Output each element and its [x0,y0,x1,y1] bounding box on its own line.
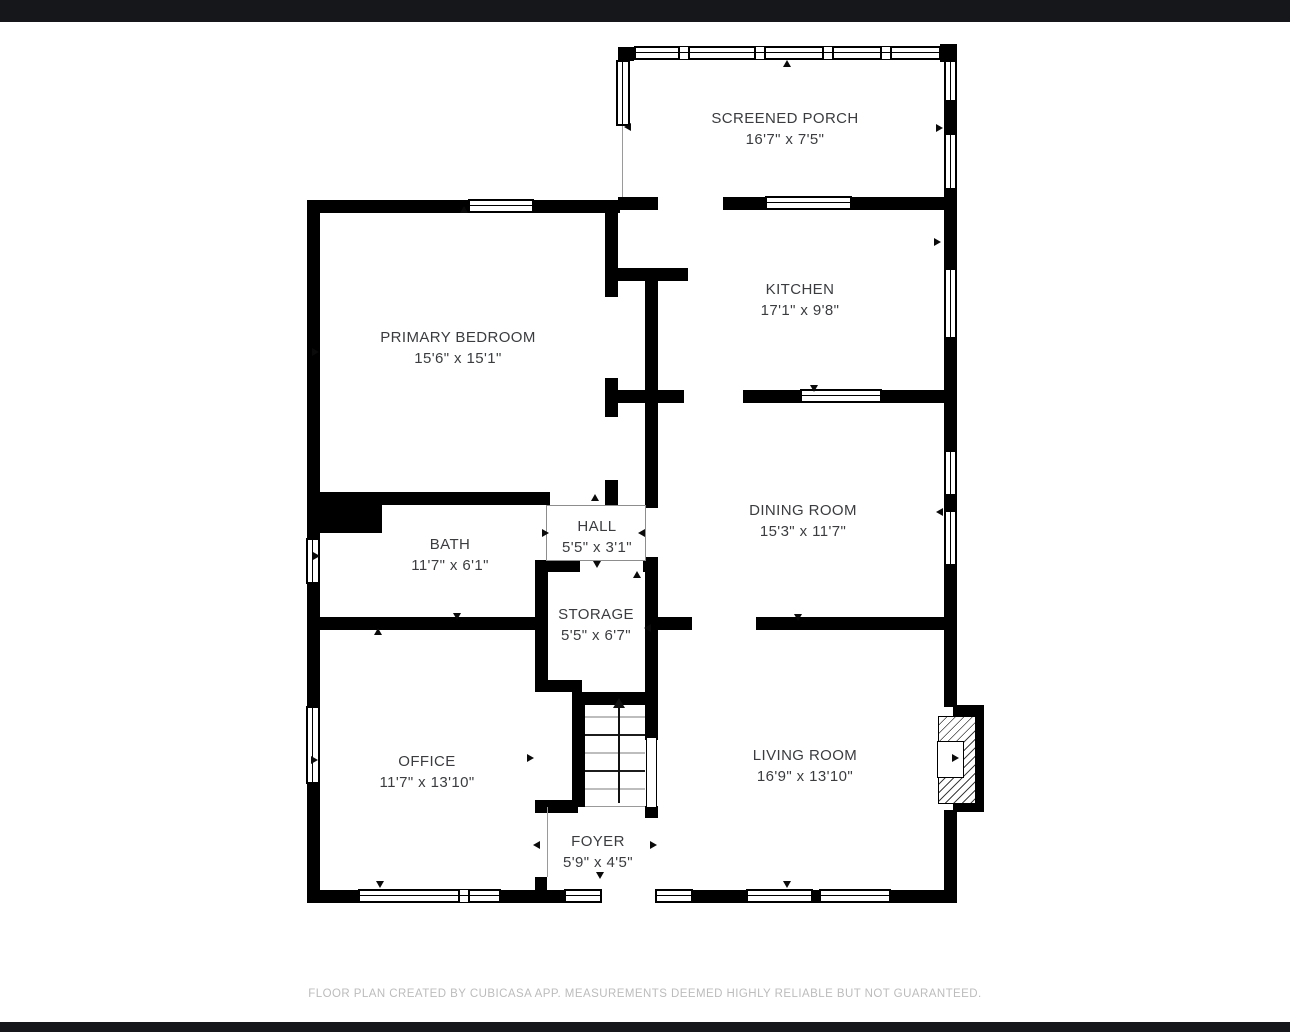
room-label-foyer: FOYER 5'9" x 4'5" [563,831,633,873]
room-name: STORAGE [558,604,634,625]
room-dimensions: 5'9" x 4'5" [563,852,633,873]
window [655,889,693,903]
porch-screen-band [634,46,941,60]
stair-tread [585,716,645,718]
wall-segment [320,505,382,533]
opening-marker [794,614,802,621]
wall-segment [880,390,957,403]
window-mullion [822,47,834,59]
stair-tread [585,734,645,736]
doorway-line [585,806,645,807]
wall-segment [850,197,957,210]
opening-marker [936,124,943,132]
opening-marker [313,552,320,560]
opening-marker [460,206,468,213]
wall-segment [756,617,944,630]
stairs-up-arrow [613,698,625,708]
opening-marker [650,841,657,849]
porch-opening-line [622,126,623,197]
opening-marker [311,756,318,764]
room-name: KITCHEN [761,279,840,300]
wall-segment [645,557,658,740]
room-dimensions: 16'7" x 7'5" [711,129,858,150]
opening-marker [533,841,540,849]
wall-segment [548,560,580,572]
window-mullion [754,47,766,59]
window [564,889,602,903]
window [944,450,957,496]
window [944,60,957,102]
room-dimensions: 11'7" x 6'1" [411,555,489,576]
room-dimensions: 17'1" x 9'8" [761,300,840,321]
opening-marker [783,60,791,67]
window-mullion [880,47,892,59]
opening-marker [527,754,534,762]
floor-plan-page: SCREENED PORCH 16'7" x 7'5" KITCHEN 17'1… [0,0,1290,1032]
window-mullion [678,47,690,59]
room-dimensions: 15'3" x 11'7" [749,521,857,542]
opening-marker [376,881,384,888]
room-label-living-room: LIVING ROOM 16'9" x 13'10" [753,745,857,787]
opening-marker [374,628,382,635]
opening-marker [644,624,651,632]
opening-marker [633,571,641,578]
window [468,199,534,213]
room-label-screened-porch: SCREENED PORCH 16'7" x 7'5" [711,108,858,150]
wall-segment [307,492,550,505]
room-label-bath: BATH 11'7" x 6'1" [411,534,489,576]
window [944,133,957,190]
stairs-direction-line [618,705,620,803]
room-name: HALL [562,516,632,537]
room-name: LIVING ROOM [753,745,857,766]
opening-marker [542,529,549,537]
stair-tread [585,770,645,772]
wall-segment [605,480,618,505]
room-name: OFFICE [379,751,474,772]
wall-segment [743,390,802,403]
room-dimensions: 15'6" x 15'1" [380,348,535,369]
disclaimer-text: FLOOR PLAN CREATED BY CUBICASA APP. MEAS… [0,988,1290,1000]
wall-segment [618,197,658,210]
room-name: DINING ROOM [749,500,857,521]
window [944,268,957,339]
opening-marker [952,754,959,762]
room-label-primary-bedroom: PRIMARY BEDROOM 15'6" x 15'1" [380,327,535,369]
window-mullion [458,890,470,902]
window [306,538,320,584]
stair-tread [585,752,645,754]
top-letterbox-bar [0,0,1290,22]
window [306,706,320,784]
opening-marker [593,561,601,568]
room-dimensions: 11'7" x 13'10" [379,772,474,793]
wall-segment [605,378,618,417]
room-label-storage: STORAGE 5'5" x 6'7" [558,604,634,646]
room-label-dining-room: DINING ROOM 15'3" x 11'7" [749,500,857,542]
wall-segment [605,208,618,297]
wall-segment [691,890,748,903]
window [819,889,891,903]
opening-marker [624,123,631,131]
window [944,510,957,566]
room-label-office: OFFICE 11'7" x 13'10" [379,751,474,793]
room-label-kitchen: KITCHEN 17'1" x 9'8" [761,279,840,321]
wall-segment [307,784,320,903]
staircase [585,700,645,805]
window [358,889,501,903]
room-name: SCREENED PORCH [711,108,858,129]
wall-segment [612,268,688,281]
wall-segment [535,800,578,813]
wall-segment [307,617,548,630]
wall-segment [535,877,547,892]
opening-marker [312,348,319,356]
wall-segment [307,200,320,540]
opening-marker [596,872,604,879]
wall-segment [307,890,364,903]
wall-segment [499,890,566,903]
wall-segment [944,564,957,707]
wall-segment [645,617,692,630]
wall-segment [645,272,658,508]
bottom-letterbox-bar [0,1022,1290,1032]
opening-marker [453,613,461,620]
stair-tread [585,788,645,790]
opening-marker [591,494,599,501]
opening-marker [934,238,941,246]
wall-segment [307,200,470,213]
wall-segment [535,680,582,692]
opening-marker [638,529,645,537]
opening-marker [810,385,818,392]
opening-marker [936,508,943,516]
wall-segment [944,100,957,135]
opening-marker [783,881,791,888]
door-slab [646,737,657,808]
room-name: PRIMARY BEDROOM [380,327,535,348]
wall-segment [723,197,767,210]
wall-segment [307,584,320,708]
room-name: FOYER [563,831,633,852]
fireplace-firebox [937,741,964,778]
room-label-hall: HALL 5'5" x 3'1" [562,516,632,558]
doorway-line [547,807,548,877]
window [765,196,852,210]
wall-segment [572,692,585,807]
room-dimensions: 5'5" x 3'1" [562,537,632,558]
window [746,889,813,903]
room-name: BATH [411,534,489,555]
wall-segment [618,47,634,61]
wall-segment [944,810,957,903]
room-dimensions: 16'9" x 13'10" [753,766,857,787]
window [616,60,630,126]
room-dimensions: 5'5" x 6'7" [558,625,634,646]
